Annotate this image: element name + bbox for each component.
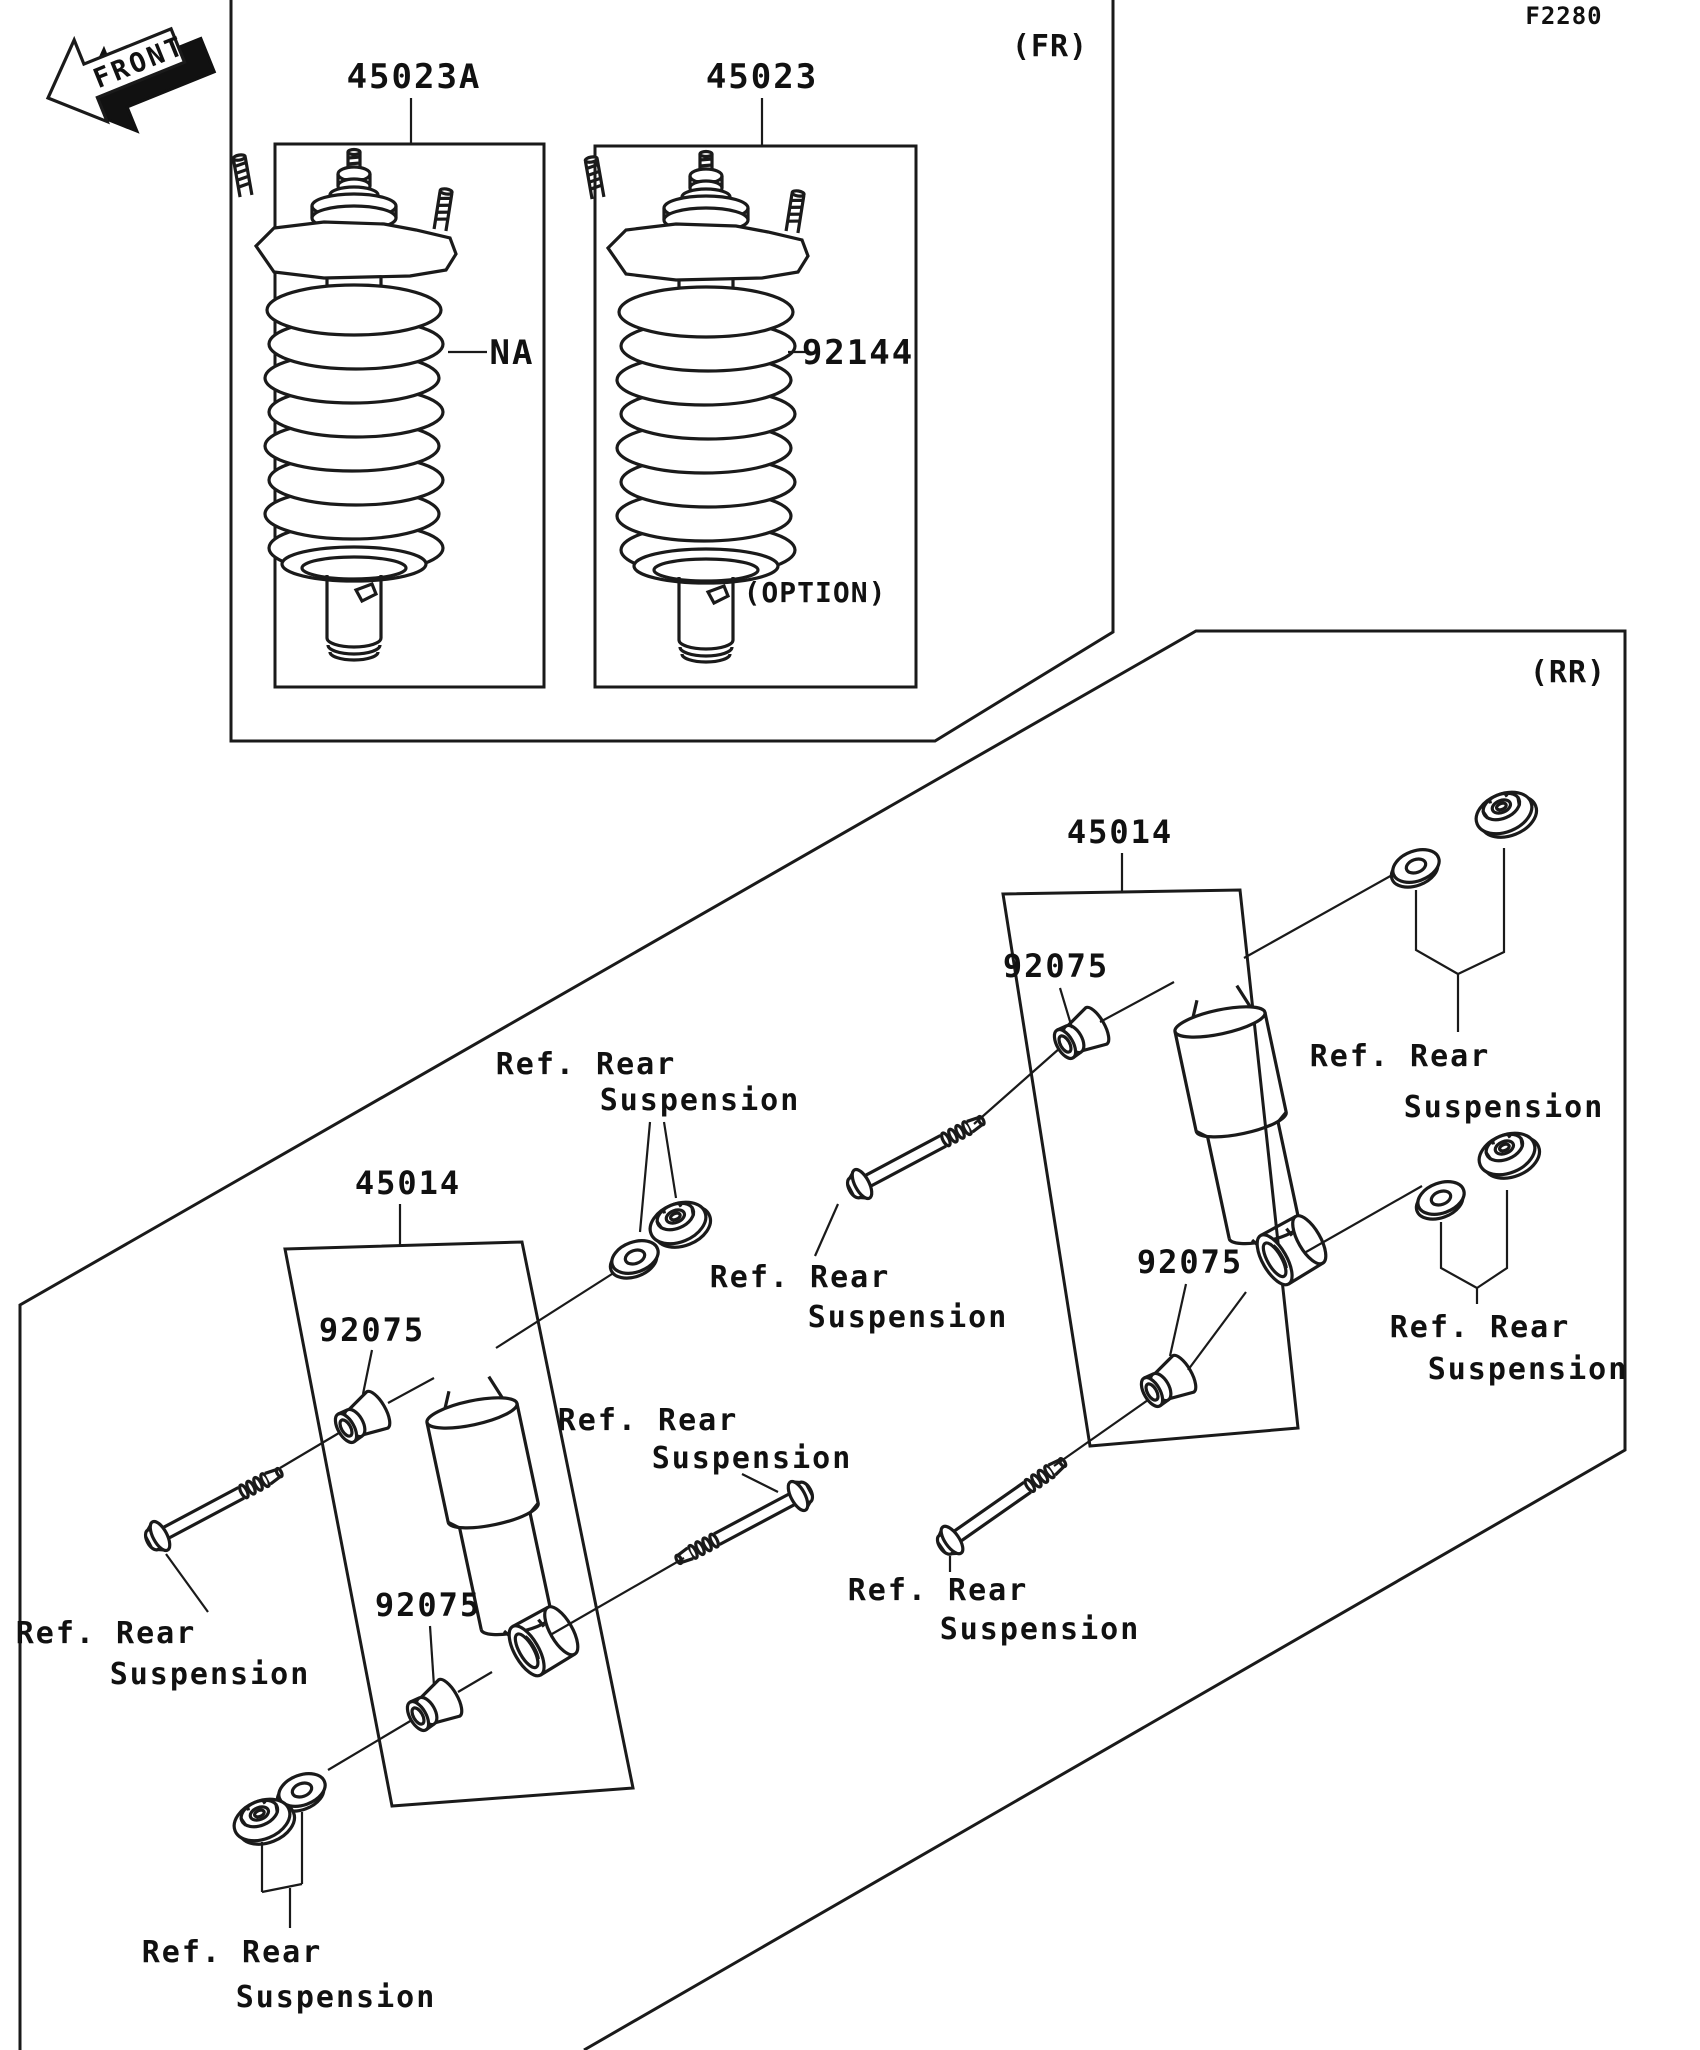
ref-label-center-line2: Suspension	[600, 1083, 801, 1118]
front-shock-standard	[233, 150, 456, 661]
axis-right-lower-1	[1054, 1400, 1148, 1466]
ref-label-l-bolt2-line2: Suspension	[110, 1657, 311, 1692]
rear-section: (RR) 45014 92075 92075	[16, 631, 1629, 2050]
part-number-92144: 92144	[802, 333, 914, 373]
axis-right-upper-3	[1244, 874, 1394, 958]
ref-label-l-bolt2-line1: Ref. Rear	[16, 1616, 197, 1651]
bolt-right-upper	[842, 1105, 991, 1204]
leader-92075-right-upper	[1060, 988, 1072, 1028]
parts-diagram-page: F2280 FRONT (FR) 45023A NA 45023 92144 (…	[0, 0, 1700, 2050]
bolt-left-lower	[669, 1475, 818, 1574]
ref-label-r-upper-line1: Ref. Rear	[1310, 1039, 1491, 1074]
bushing-92075-right-upper	[1048, 1004, 1114, 1066]
front-section: (FR) 45023A NA 45023 92144 (OPTION)	[231, 0, 1113, 741]
axis-right-lower-2	[1188, 1292, 1246, 1370]
nut-right-lower	[1473, 1124, 1546, 1187]
bolt-left-upper	[140, 1457, 289, 1556]
part-number-45014-right: 45014	[1067, 813, 1173, 851]
part-number-45014-left: 45014	[355, 1164, 461, 1202]
washer-left-upper	[604, 1235, 664, 1284]
front-section-label: (FR)	[1012, 29, 1088, 64]
axis-right-upper-2	[1100, 982, 1174, 1022]
rear-assembly-left: 45014 92075 92075	[140, 1122, 818, 1928]
ref-label-r-lowbolt-line1: Ref. Rear	[848, 1573, 1029, 1608]
bushing-92075-left-upper	[329, 1388, 395, 1450]
shock-absorber-diagram: F2280 FRONT (FR) 45023A NA 45023 92144 (…	[0, 0, 1700, 2050]
washer-right-upper	[1385, 844, 1445, 893]
axis-right-lower-3	[1306, 1186, 1422, 1252]
axis-left-upper-1	[280, 1430, 344, 1468]
bushing-92075-right-lower	[1135, 1352, 1201, 1414]
ref-label-r-bolt-line2: Suspension	[808, 1300, 1009, 1335]
part-number-45023A: 45023A	[347, 57, 482, 97]
leader-ref-r-upper-bolt	[815, 1204, 838, 1256]
ref-label-l-bolt-line2: Suspension	[652, 1441, 853, 1476]
part-number-92075-left-upper: 92075	[319, 1311, 425, 1349]
ref-rear-suspension-labels: Ref. Rear Suspension Ref. Rear Suspensio…	[16, 1039, 1629, 2015]
axis-left-lower-2	[458, 1672, 492, 1692]
axis-left-upper-3	[496, 1274, 612, 1348]
rear-assembly-right: 45014 92075 92075	[842, 783, 1546, 1561]
part-number-92075-right-upper: 92075	[1003, 947, 1109, 985]
ref-label-l-lower-line2: Suspension	[236, 1980, 437, 2015]
drawing-code: F2280	[1525, 2, 1602, 30]
nut-right-upper	[1470, 783, 1543, 846]
ref-label-l-lower-line1: Ref. Rear	[142, 1935, 323, 1970]
washer-right-lower	[1410, 1176, 1470, 1225]
ref-label-r-lower-line1: Ref. Rear	[1390, 1310, 1571, 1345]
part-number-45023: 45023	[706, 57, 818, 97]
ref-label-r-lower-line2: Suspension	[1428, 1352, 1629, 1387]
option-label: (OPTION)	[744, 576, 887, 609]
ref-label-center-line1: Ref. Rear	[496, 1047, 677, 1082]
ref-label-r-lowbolt-line2: Suspension	[940, 1612, 1141, 1647]
leader-92075-right-lower	[1170, 1284, 1186, 1356]
part-number-92075-right-lower: 92075	[1137, 1243, 1243, 1281]
leader-92075-left-upper	[363, 1350, 372, 1394]
bolt-right-lower	[931, 1448, 1073, 1561]
leader-ref-l-lower-bolt	[742, 1474, 778, 1492]
ref-label-l-bolt-line1: Ref. Rear	[558, 1403, 739, 1438]
axis-right-upper-1	[974, 1048, 1060, 1124]
axis-left-lower-1	[552, 1558, 684, 1634]
leader-ref-l-upper-bolt	[166, 1554, 208, 1612]
axis-left-upper-2	[388, 1378, 434, 1403]
ref-label-r-bolt-line1: Ref. Rear	[710, 1260, 891, 1295]
front-arrow: FRONT	[32, 0, 225, 157]
label-na: NA	[490, 333, 535, 373]
axis-left-lower-3	[328, 1720, 412, 1770]
leader-92075-left-lower	[430, 1626, 434, 1686]
ref-label-r-upper-line2: Suspension	[1404, 1090, 1605, 1125]
part-number-92075-left-lower: 92075	[375, 1586, 481, 1624]
rear-section-label: (RR)	[1530, 655, 1606, 690]
